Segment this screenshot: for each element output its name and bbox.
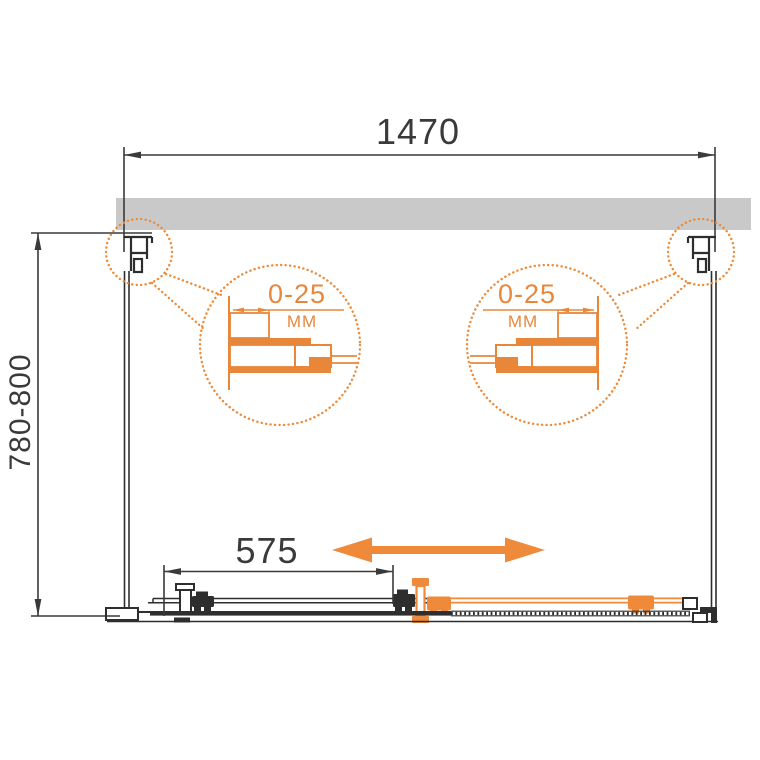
- detail-right-unit-label: ММ: [508, 312, 538, 331]
- callout-connector-right: [616, 274, 688, 330]
- dimension-width: 1470: [124, 111, 715, 252]
- arrowhead-up-icon: [35, 233, 42, 250]
- detail-left-unit-label: ММ: [287, 312, 317, 331]
- wall-bracket-left: [124, 237, 152, 272]
- detail-right-range-label: 0-25: [498, 279, 556, 309]
- wall-bracket-right: [688, 237, 716, 272]
- panel-end-bracket: [683, 598, 697, 609]
- width-dimension-label: 1470: [376, 111, 460, 152]
- slide-direction-arrow-icon: [332, 538, 545, 563]
- bottom-rail-left: [150, 611, 451, 616]
- arrowhead-right-icon: [376, 568, 393, 575]
- detail-left-range-label: 0-25: [268, 279, 326, 309]
- wall-band: [116, 198, 751, 230]
- arrowhead-left-icon: [124, 152, 141, 159]
- arrowhead-down-icon: [35, 599, 42, 616]
- detail-circle-left: 0-25 ММ: [200, 265, 360, 425]
- wall-rect: [116, 198, 751, 230]
- technical-drawing: 1470 780-800: [0, 0, 760, 760]
- glass-panel-right: [712, 271, 717, 609]
- arrowhead-left-icon: [164, 568, 181, 575]
- depth-dimension-label: 780-800: [4, 353, 37, 470]
- bottom-rail-right: [451, 611, 690, 616]
- drawing-canvas: 1470 780-800: [0, 0, 760, 760]
- detail-circle-right: 0-25 ММ: [467, 265, 627, 425]
- roller-fixed-mid: [393, 590, 415, 613]
- glass-panel-left: [125, 271, 130, 607]
- arrowhead-right-icon: [698, 152, 715, 159]
- bottom-track: [106, 578, 718, 623]
- roller-fixed-left: [192, 592, 214, 613]
- door-travel-dimension-label: 575: [235, 530, 298, 571]
